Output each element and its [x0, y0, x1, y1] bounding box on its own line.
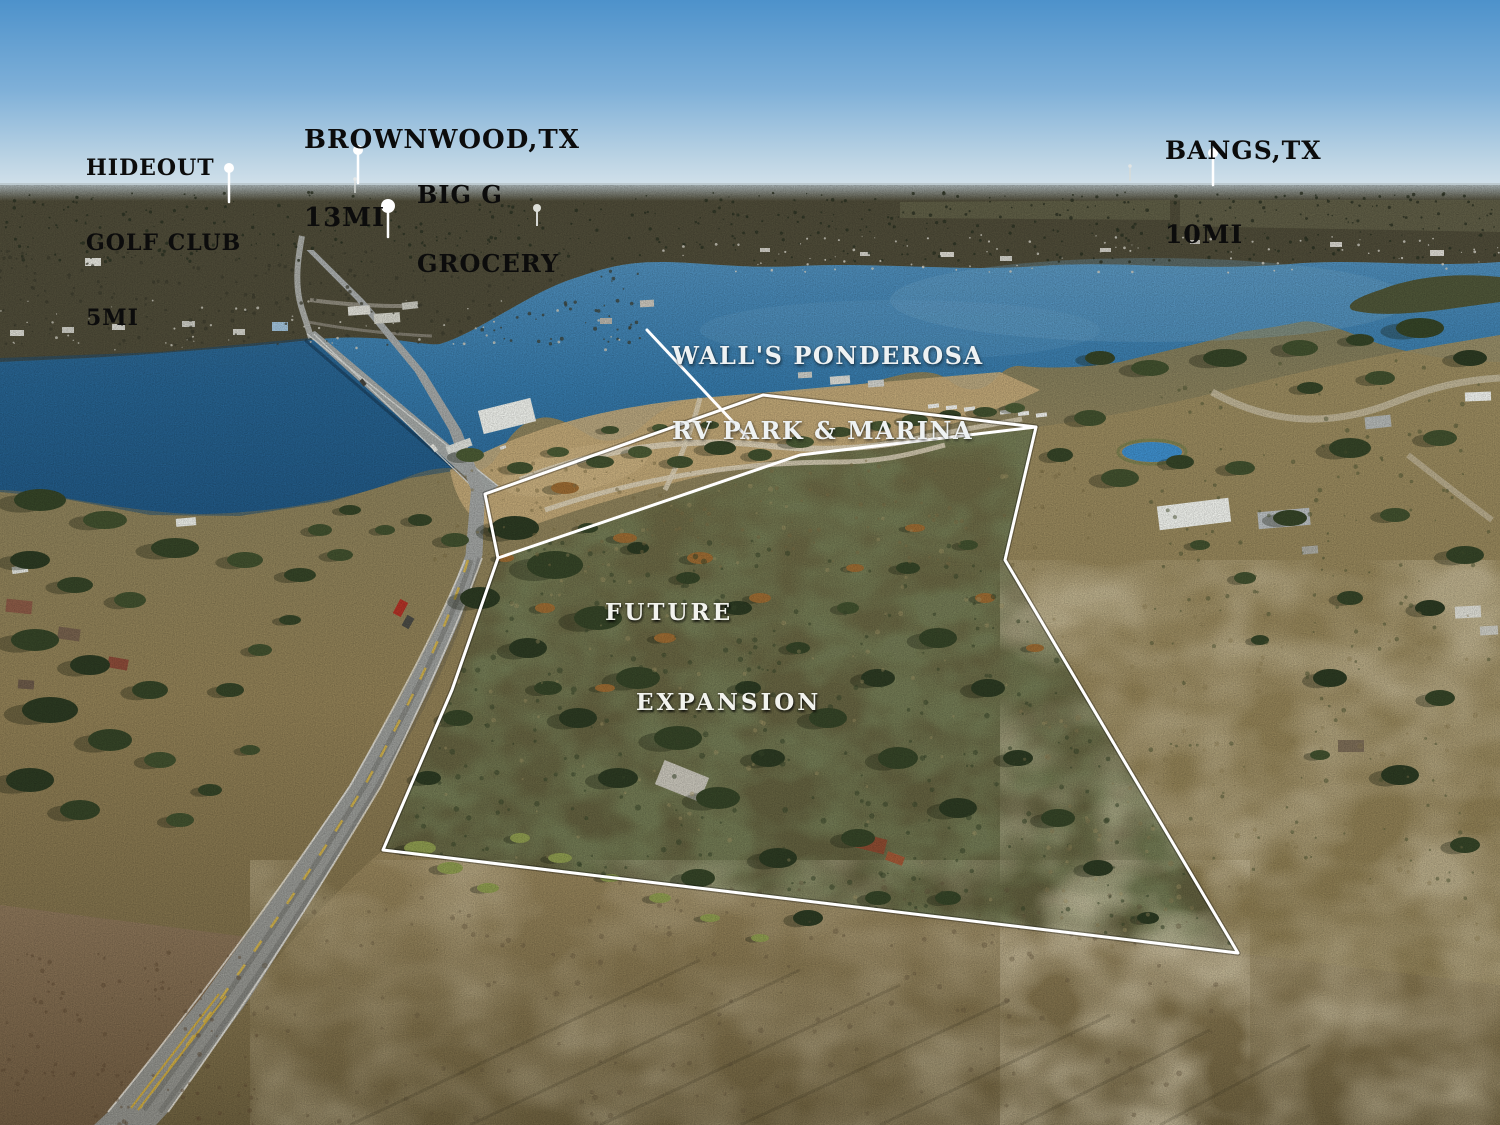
label-line: FUTURE	[605, 598, 821, 628]
label-line: 5MI	[86, 306, 241, 331]
label-rv-park-marina: WALL'S PONDEROSA RV PARK & MARINA	[672, 293, 984, 468]
label-line: GROCERY	[417, 252, 559, 275]
label-line: HIDEOUT	[86, 156, 241, 181]
label-line: EXPANSION	[636, 688, 821, 718]
aerial-photo-container: HIDEOUT GOLF CLUB 5MI BROWNWOOD,TX 13MI …	[0, 0, 1500, 1125]
label-line: BIG G	[417, 183, 559, 206]
label-line: BANGS,TX	[1165, 137, 1322, 165]
label-line: 10MI	[1165, 221, 1322, 249]
label-line: RV PARK & MARINA	[672, 418, 984, 443]
label-hideout-golf-club: HIDEOUT GOLF CLUB 5MI	[86, 106, 241, 356]
label-big-g-grocery: BIG G GROCERY	[417, 137, 559, 298]
label-bangs: BANGS,TX 10MI	[1165, 81, 1322, 277]
label-future-expansion: FUTURE EXPANSION	[605, 538, 821, 748]
label-line: WALL'S PONDEROSA	[672, 343, 984, 368]
label-line: GOLF CLUB	[86, 231, 241, 256]
